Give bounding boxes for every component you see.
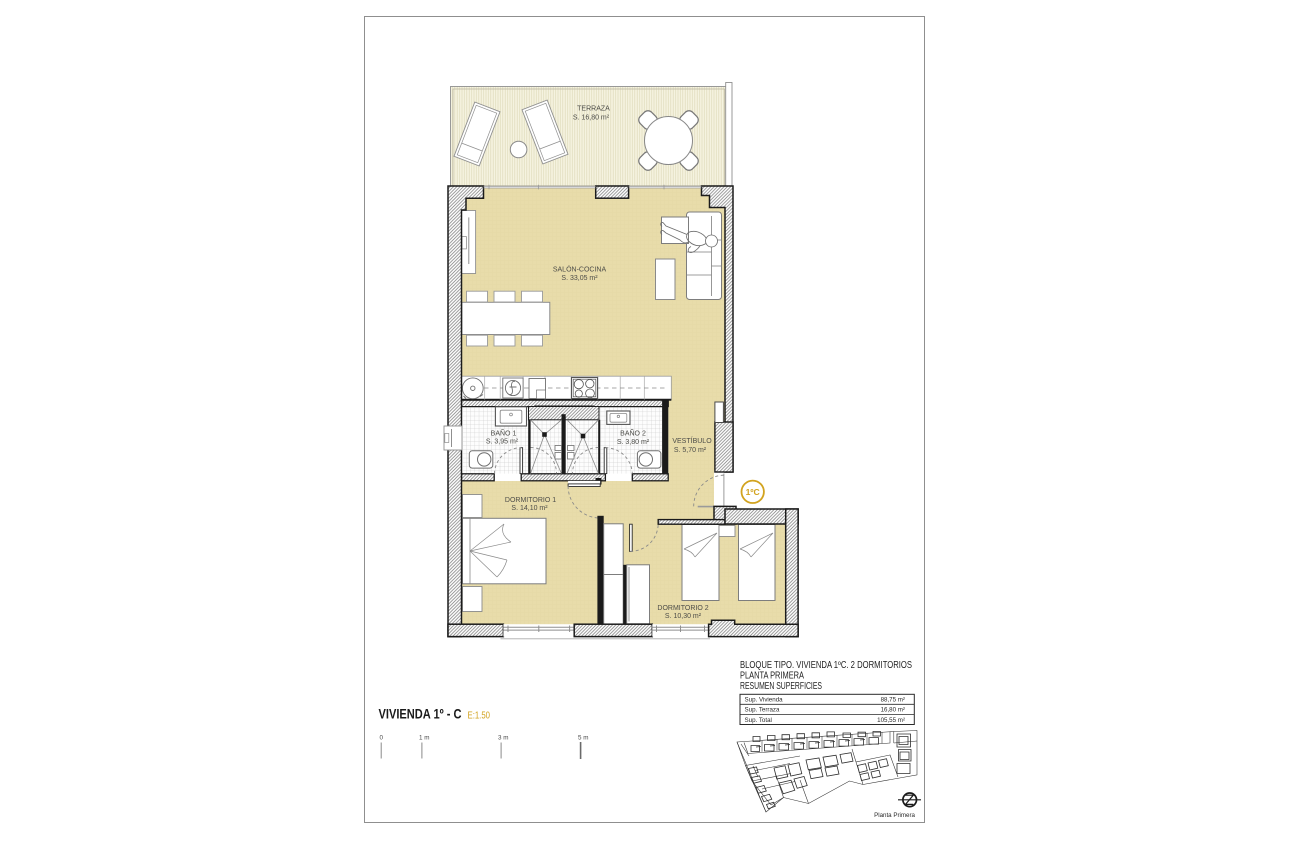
svg-text:S. 33,05 m²: S. 33,05 m²	[561, 275, 598, 282]
svg-text:S. 10,30 m²: S. 10,30 m²	[665, 613, 702, 620]
svg-text:Sup. Vivienda: Sup. Vivienda	[745, 697, 784, 704]
svg-text:BAÑO 2: BAÑO 2	[620, 429, 646, 438]
svg-text:S. 16,80 m²: S. 16,80 m²	[573, 114, 610, 121]
svg-text:SALÓN-COCINA: SALÓN-COCINA	[553, 265, 607, 274]
svg-text:BAÑO 1: BAÑO 1	[491, 429, 517, 438]
svg-text:S. 5,70 m²: S. 5,70 m²	[674, 447, 707, 454]
svg-text:DORMITORIO 1: DORMITORIO 1	[505, 497, 556, 504]
svg-text:DORMITORIO 2: DORMITORIO 2	[657, 605, 708, 612]
svg-text:S. 3,95 m²: S. 3,95 m²	[486, 439, 519, 446]
svg-text:Sup. Terraza: Sup. Terraza	[745, 707, 781, 714]
svg-text:PLANTA PRIMERA: PLANTA PRIMERA	[740, 671, 804, 682]
svg-text:1 m: 1 m	[419, 735, 430, 742]
svg-text:VESTÍBULO: VESTÍBULO	[672, 436, 712, 445]
svg-text:S. 3,80 m²: S. 3,80 m²	[617, 439, 650, 446]
svg-text:VIVIENDA 1º - C: VIVIENDA 1º - C	[379, 707, 462, 722]
svg-text:88,75 m²: 88,75 m²	[881, 697, 905, 704]
svg-text:TERRAZA: TERRAZA	[577, 106, 610, 113]
svg-text:S. 14,10 m²: S. 14,10 m²	[511, 505, 548, 512]
svg-text:E:1.50: E:1.50	[468, 710, 491, 722]
svg-text:0: 0	[380, 735, 384, 742]
svg-text:1ºC: 1ºC	[746, 487, 760, 497]
svg-text:BLOQUE TIPO. VIVIENDA 1ºC. 2 D: BLOQUE TIPO. VIVIENDA 1ºC. 2 DORMITORIOS	[740, 660, 912, 671]
svg-text:RESUMEN SUPERFICIES: RESUMEN SUPERFICIES	[740, 681, 822, 692]
svg-text:Sup. Total: Sup. Total	[745, 717, 772, 724]
svg-text:16,80 m²: 16,80 m²	[881, 707, 905, 714]
svg-text:Planta Primera: Planta Primera	[874, 812, 915, 819]
svg-text:105,55 m²: 105,55 m²	[877, 717, 905, 724]
svg-text:5 m: 5 m	[578, 735, 589, 742]
svg-text:3 m: 3 m	[498, 735, 509, 742]
